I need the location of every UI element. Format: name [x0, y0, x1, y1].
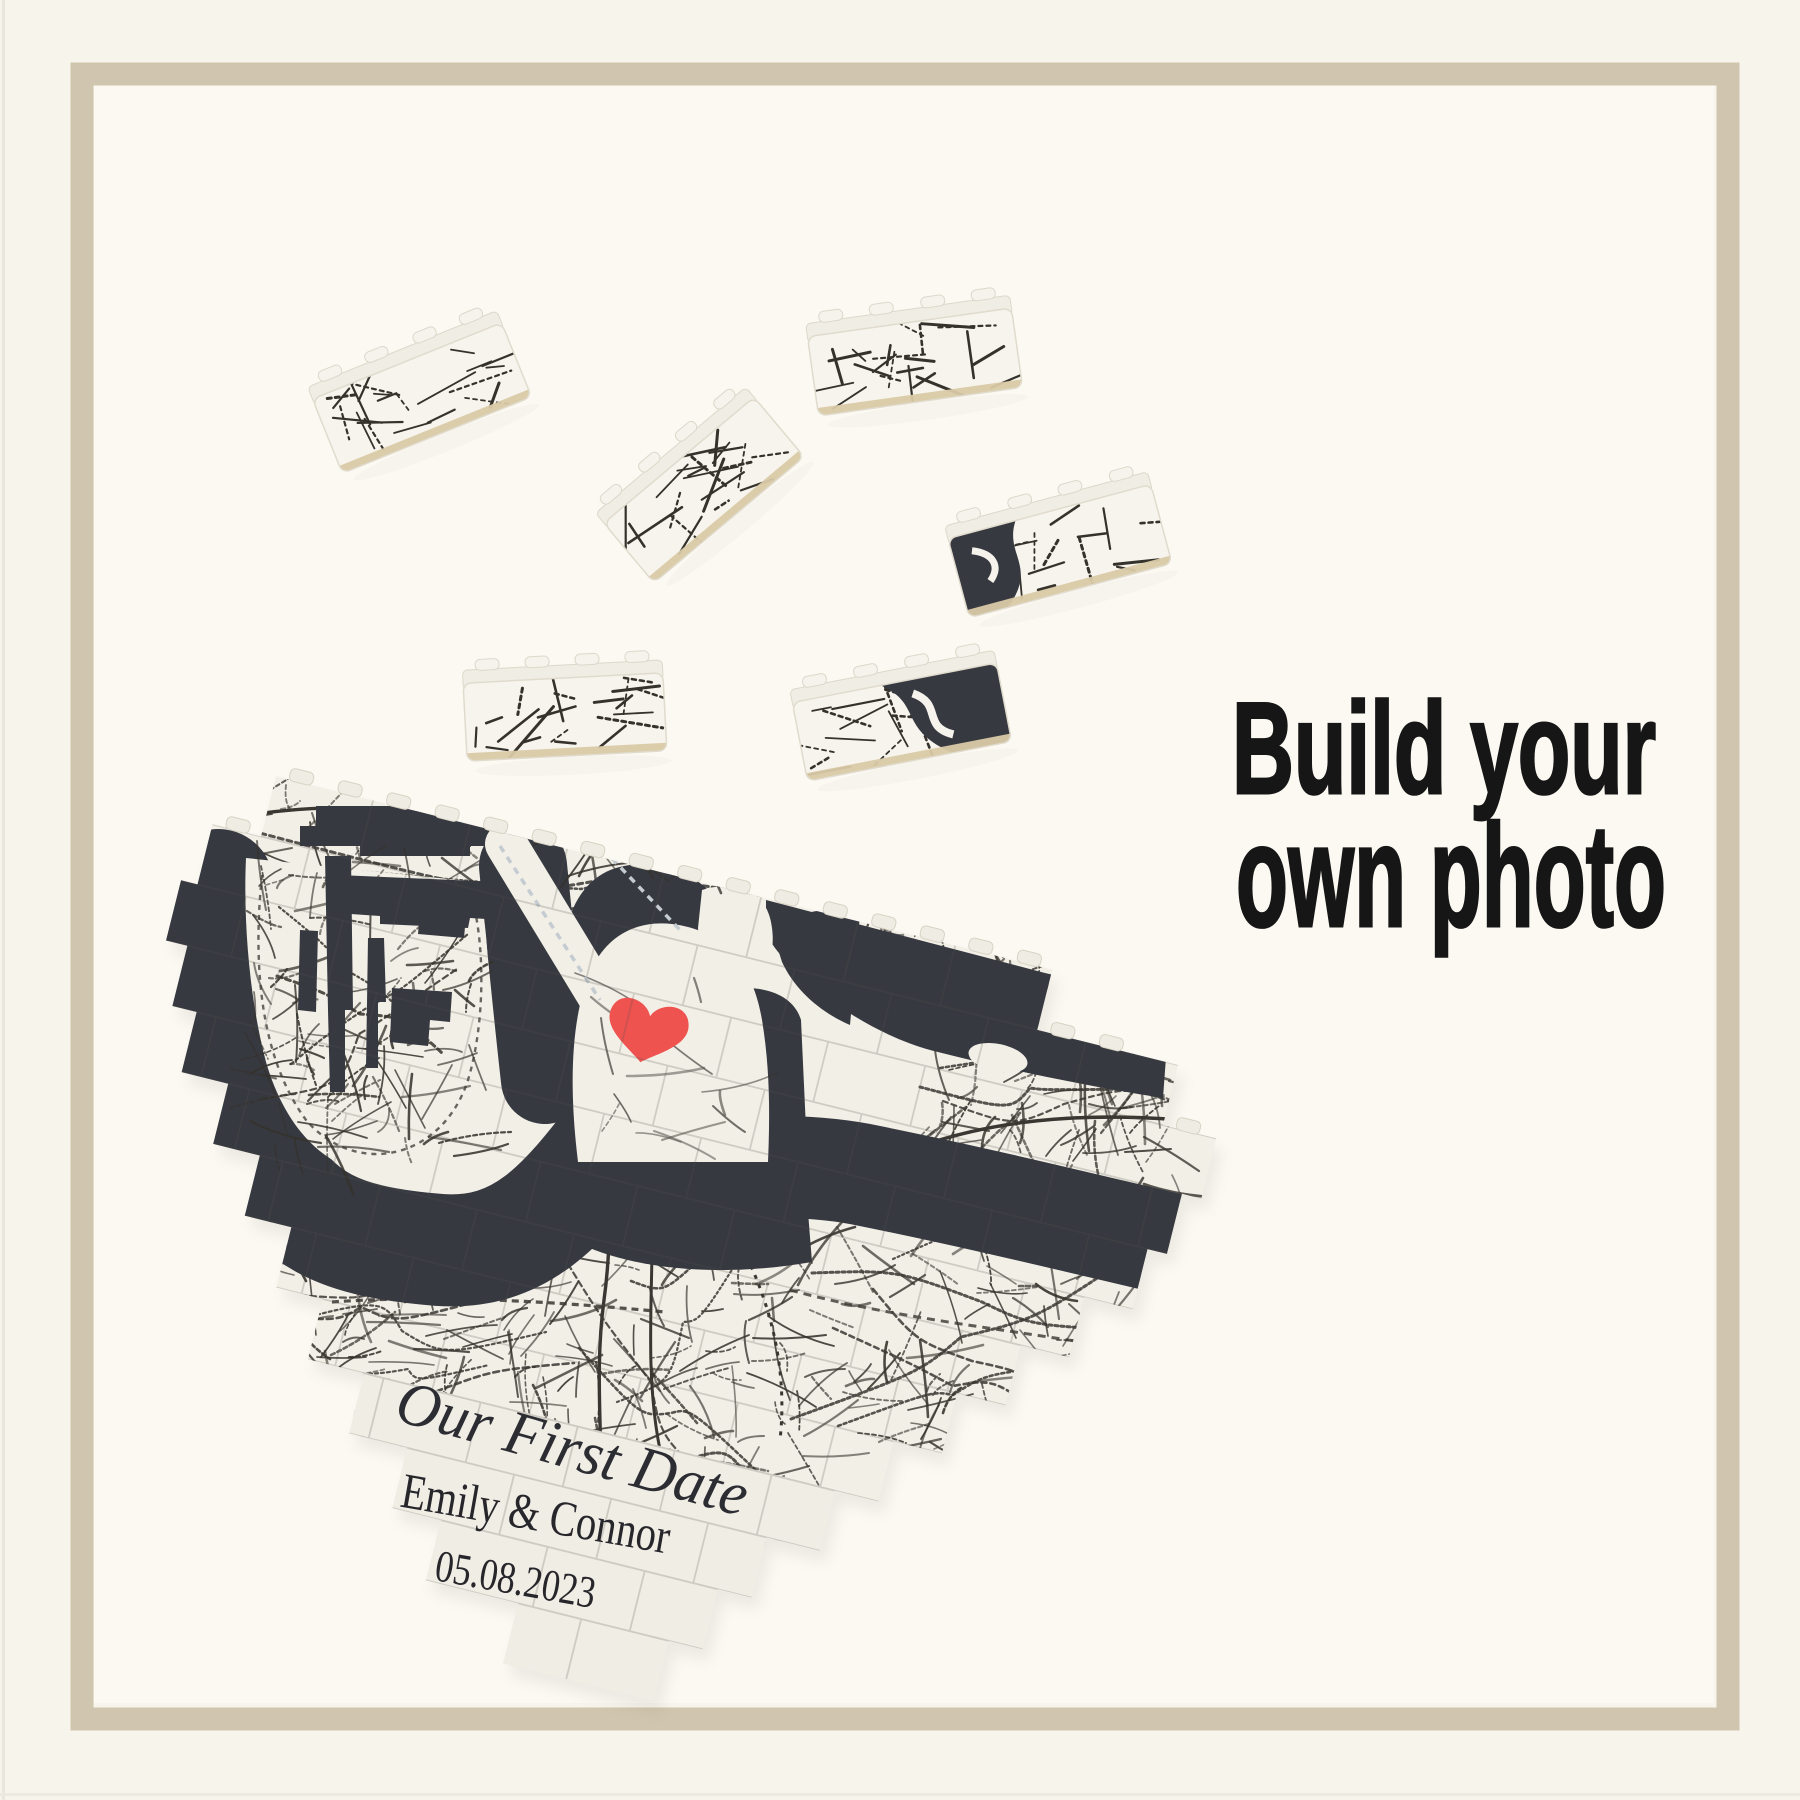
svg-text:own photo: own photo	[1236, 794, 1666, 957]
